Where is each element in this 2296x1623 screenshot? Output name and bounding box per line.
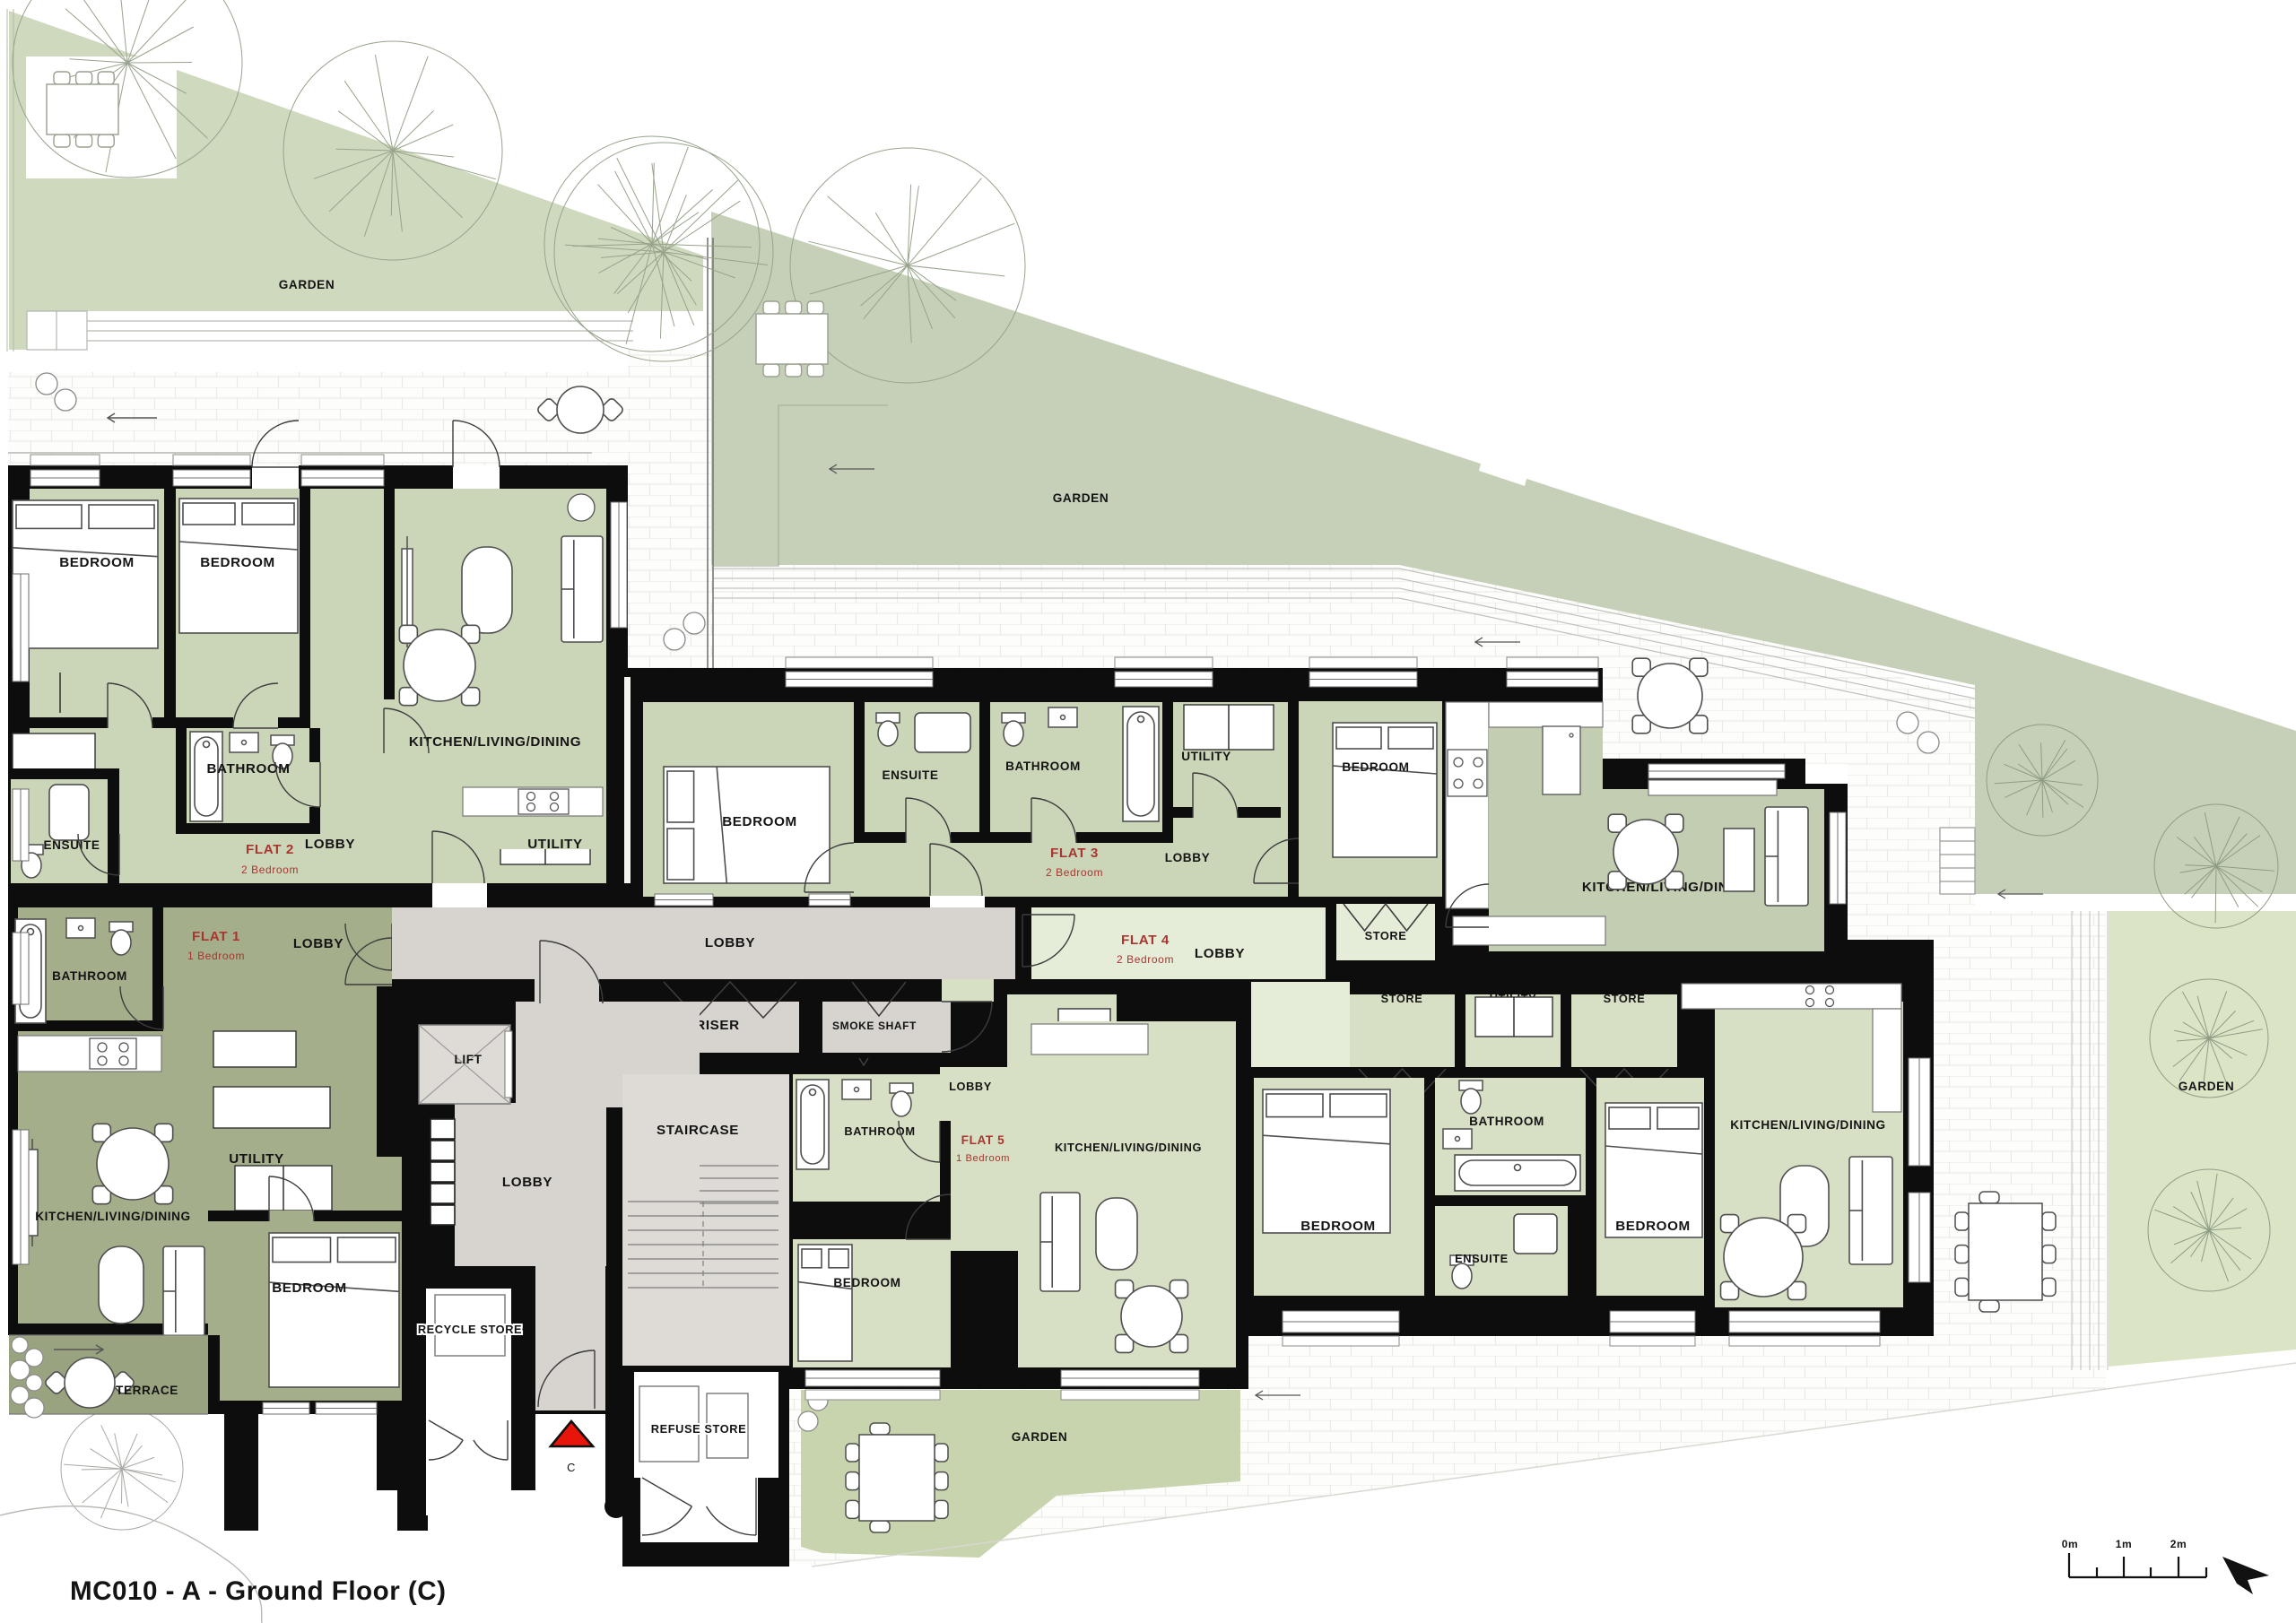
svg-text:BEDROOM: BEDROOM [1615, 1219, 1691, 1234]
svg-text:STORE: STORE [1365, 929, 1407, 942]
svg-text:ENSUITE: ENSUITE [1455, 1252, 1509, 1265]
svg-text:FLAT 1: FLAT 1 [192, 929, 240, 944]
svg-text:MC010 - A - Ground Floor (C): MC010 - A - Ground Floor (C) [70, 1576, 447, 1606]
svg-text:BEDROOM: BEDROOM [1342, 760, 1409, 774]
svg-text:REFUSE STORE: REFUSE STORE [651, 1422, 747, 1436]
svg-text:LOBBY: LOBBY [705, 935, 755, 950]
svg-text:BEDROOM: BEDROOM [833, 1276, 900, 1289]
svg-text:SMOKE SHAFT: SMOKE SHAFT [832, 1020, 917, 1032]
svg-text:TERRACE: TERRACE [116, 1384, 178, 1397]
svg-text:2 Bedroom: 2 Bedroom [1117, 953, 1174, 966]
svg-text:2 Bedroom: 2 Bedroom [241, 864, 299, 876]
svg-text:BEDROOM: BEDROOM [1300, 1219, 1376, 1234]
svg-text:C: C [567, 1461, 576, 1474]
svg-text:FLAT 5: FLAT 5 [961, 1133, 1005, 1147]
svg-text:BATHROOM: BATHROOM [844, 1124, 915, 1138]
svg-text:GARDEN: GARDEN [279, 278, 335, 291]
svg-text:KITCHEN/LIVING/DINING: KITCHEN/LIVING/DINING [1730, 1118, 1885, 1132]
svg-text:KITCHEN/LIVING/DINING: KITCHEN/LIVING/DINING [409, 734, 581, 750]
svg-text:FLAT 3: FLAT 3 [1050, 846, 1099, 861]
svg-text:GARDEN: GARDEN [1012, 1430, 1068, 1444]
svg-text:LOBBY: LOBBY [949, 1080, 992, 1093]
svg-text:LIFT: LIFT [454, 1053, 482, 1066]
svg-text:ENSUITE: ENSUITE [882, 768, 938, 782]
svg-text:LOBBY: LOBBY [293, 936, 344, 951]
svg-text:BATHROOM: BATHROOM [52, 969, 127, 983]
svg-text:2 Bedroom: 2 Bedroom [1046, 866, 1103, 879]
svg-text:FLAT 4: FLAT 4 [1121, 933, 1170, 948]
svg-text:UTILITY: UTILITY [527, 837, 583, 852]
svg-text:GARDEN: GARDEN [1053, 491, 1109, 505]
svg-text:RISER: RISER [695, 1018, 739, 1033]
svg-text:KITCHEN/LIVING/DINING: KITCHEN/LIVING/DINING [35, 1210, 190, 1223]
svg-text:UTILITY: UTILITY [229, 1151, 284, 1167]
svg-text:LOBBY: LOBBY [305, 837, 355, 852]
svg-text:0m: 0m [2062, 1538, 2079, 1550]
svg-text:ENSUITE: ENSUITE [43, 838, 100, 852]
svg-text:1 Bedroom: 1 Bedroom [187, 950, 245, 962]
svg-text:BEDROOM: BEDROOM [200, 555, 275, 570]
svg-text:LOBBY: LOBBY [1165, 851, 1211, 864]
svg-text:STORE: STORE [1604, 992, 1646, 1005]
svg-text:GARDEN: GARDEN [2179, 1080, 2235, 1093]
svg-text:BEDROOM: BEDROOM [722, 814, 797, 829]
svg-text:LOBBY: LOBBY [502, 1175, 552, 1190]
svg-text:BATHROOM: BATHROOM [1005, 759, 1081, 773]
svg-text:LOBBY: LOBBY [1195, 946, 1245, 961]
svg-text:BATHROOM: BATHROOM [1469, 1115, 1544, 1128]
svg-text:2m: 2m [2170, 1538, 2187, 1550]
svg-text:1 Bedroom: 1 Bedroom [956, 1153, 1010, 1164]
svg-text:BEDROOM: BEDROOM [272, 1280, 347, 1296]
svg-text:FLAT 2: FLAT 2 [246, 842, 294, 857]
svg-text:RECYCLE STORE: RECYCLE STORE [418, 1323, 522, 1336]
svg-text:1m: 1m [2116, 1538, 2133, 1550]
svg-text:KITCHEN/LIVING/DINING: KITCHEN/LIVING/DINING [1055, 1141, 1202, 1154]
svg-text:STAIRCASE: STAIRCASE [657, 1123, 739, 1138]
svg-text:BATHROOM: BATHROOM [206, 761, 290, 777]
svg-text:UTILITY: UTILITY [1181, 750, 1231, 763]
svg-text:STORE: STORE [1381, 992, 1423, 1005]
svg-text:BEDROOM: BEDROOM [59, 555, 135, 570]
